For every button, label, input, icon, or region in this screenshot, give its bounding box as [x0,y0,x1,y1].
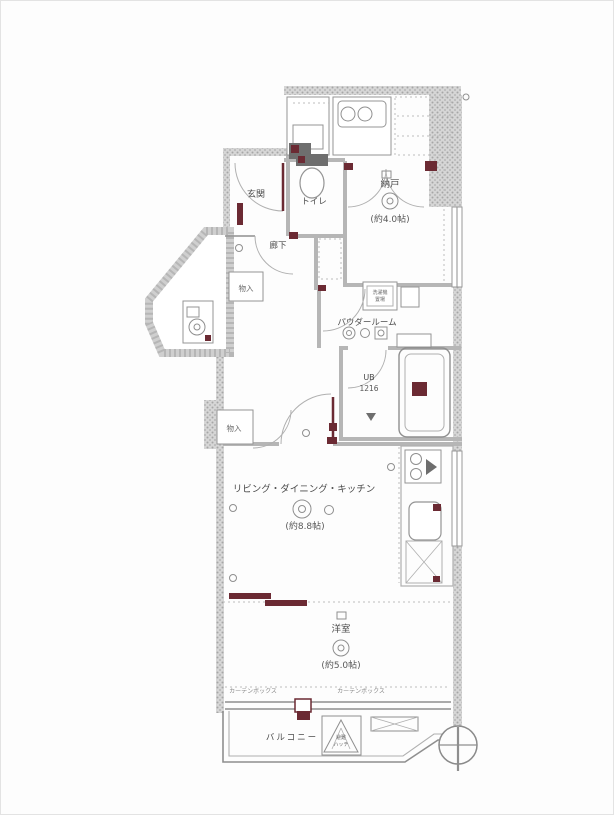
balcony-label: バルコニー [266,733,318,743]
storage-door-hinge-left [344,163,353,170]
ldk-door-hinge [327,437,337,444]
laundry-label-1: 洗濯機 [372,289,387,296]
powder-door-hinge [318,285,326,291]
evacuation-hatch: 避難 ハッチ [322,716,361,755]
downlight-symbol [388,464,395,471]
downlight-symbol [230,575,237,582]
kitchen-counter [399,446,453,586]
storage-room-label: 納戸 [380,178,399,190]
entrance-frame-accent [237,203,243,225]
ceiling-light-symbol [293,500,311,518]
washbasin-symbol [343,327,355,339]
floorplan-drawing: 玄関 トイレ 納戸 (約4.0帖) 廊下 物入 [1,1,614,815]
faucet-accent [433,504,441,511]
floorplan-page: 玄関 トイレ 納戸 (約4.0帖) 廊下 物入 [0,0,614,815]
room-powder: 洗濯機 置場 パウダールーム [318,282,419,339]
toilet-label: トイレ [301,197,327,207]
bedroom-label: 洋室 [331,623,350,635]
bath-door-arc [348,350,386,388]
downlight-symbol [236,245,243,252]
hatch-label-1: 避難 [336,734,346,741]
sliding-partition [223,593,451,606]
sliding-door-panel [229,593,271,599]
ceiling-light-symbol [333,640,349,656]
bedroom-size: (約5.0帖) [321,659,360,671]
porch-wedge [149,231,230,353]
pipe-space-box [401,287,419,307]
downlight-symbol [303,430,310,437]
toilet-bowl [300,168,324,198]
room-hallway: 廊下 物入 [229,239,341,437]
bathtub-accent [412,382,427,396]
top-strip-fixtures [287,97,451,159]
ceiling-light-symbol [382,193,398,209]
storage-door-hinge-right [425,161,437,171]
detector-symbol [337,612,346,619]
room-bedroom: 洋室 (約5.0帖) カーテンボックス カーテンボックス [225,612,449,695]
sliding-door-panel [265,600,307,606]
balcony-rail-inner [229,711,453,756]
downlight-symbol [230,505,237,512]
hall-shelf [319,239,341,279]
survey-point-marker [463,94,469,100]
balcony: バルコニー 避難 ハッチ [223,711,453,762]
storage-room-size: (約4.0帖) [370,213,409,225]
bath-counter-box [397,334,431,347]
porch-accent [205,335,211,341]
curtain-box-left-label: カーテンボックス [229,687,277,695]
ldk-label: リビング・ダイニング・キッチン [233,483,376,495]
bath-label-2: 1216 [359,384,378,393]
closet-upper-label: 物入 [239,283,254,293]
drain-symbol [366,413,376,421]
powder-room-label: パウダールーム [337,317,396,328]
curtain-box-right-label: カーテンボックス [337,687,385,695]
hallway-label: 廊下 [269,240,287,251]
hatch-label-2: ハッチ [333,742,348,748]
compass [439,726,477,771]
window-mullion [295,699,311,712]
room-entrance: 玄関 [235,163,283,225]
closet-lower-label: 物入 [227,423,242,433]
window-accent [297,711,310,720]
toilet-door-hinge [289,232,298,239]
room-storage: 納戸 (約4.0帖) [344,161,462,287]
sink-counter [338,101,386,127]
bath-label-1: UB [363,373,374,382]
ldk-size: (約8.8帖) [285,520,324,532]
sensor-symbol [325,506,334,515]
laundry-label-2: 置場 [375,296,385,303]
partition-board [371,717,418,731]
